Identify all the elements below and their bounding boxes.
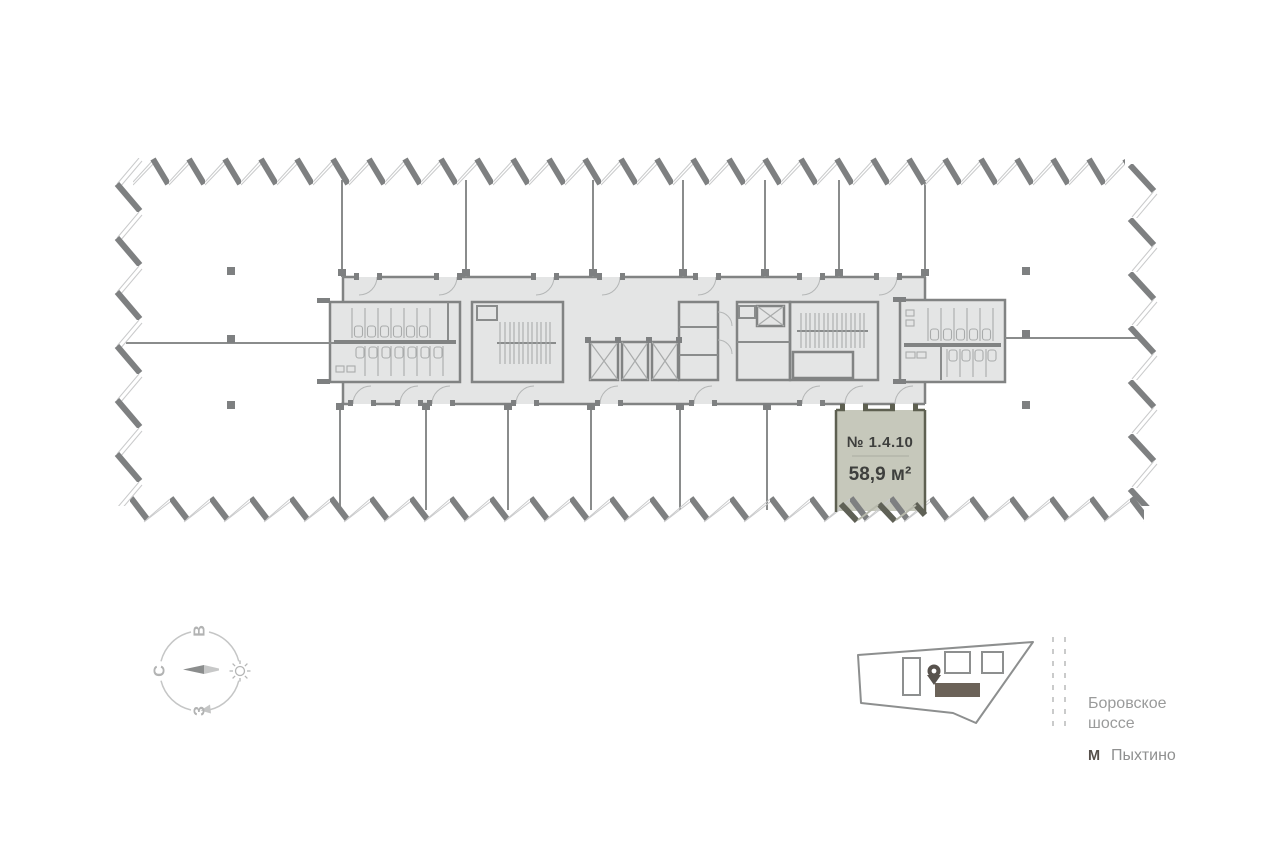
- road-label-line2: шоссе: [1088, 715, 1135, 732]
- unit-area-label: 58,9 м²: [849, 464, 912, 485]
- map-legend: Боровское шоссе М Пыхтино: [1088, 695, 1176, 764]
- site-plan: [858, 637, 1065, 726]
- compass-north-label: С: [152, 665, 169, 677]
- building-footprint: [935, 683, 980, 697]
- wc-right-fill: [900, 300, 1005, 382]
- facade-right: [1127, 164, 1162, 506]
- lower-partitions: [340, 404, 767, 510]
- upper-partitions: [342, 180, 925, 277]
- facade-bottom: [130, 495, 1144, 523]
- facade-left: [113, 158, 147, 506]
- road-label-line1: Боровское: [1088, 695, 1167, 712]
- compass-needle-icon: [183, 665, 219, 674]
- compass-west-label: З: [192, 706, 209, 716]
- metro-icon: М: [1088, 748, 1100, 764]
- facade-top: [133, 155, 1125, 187]
- unit-1410[interactable]: [836, 404, 925, 511]
- road-dashed-lines: [1053, 637, 1065, 726]
- stair-2-treads: [801, 313, 864, 348]
- sun-icon: [230, 661, 251, 682]
- unit-number-label: № 1.4.10: [847, 434, 914, 451]
- compass-east-label: В: [192, 625, 209, 637]
- floor-plan-page: № 1.4.10 58,9 м² С В З: [0, 0, 1280, 853]
- metro-name-label: Пыхтино: [1111, 747, 1176, 764]
- compass: С В З: [152, 625, 251, 716]
- floor-plan-svg: № 1.4.10 58,9 м² С В З: [0, 0, 1280, 853]
